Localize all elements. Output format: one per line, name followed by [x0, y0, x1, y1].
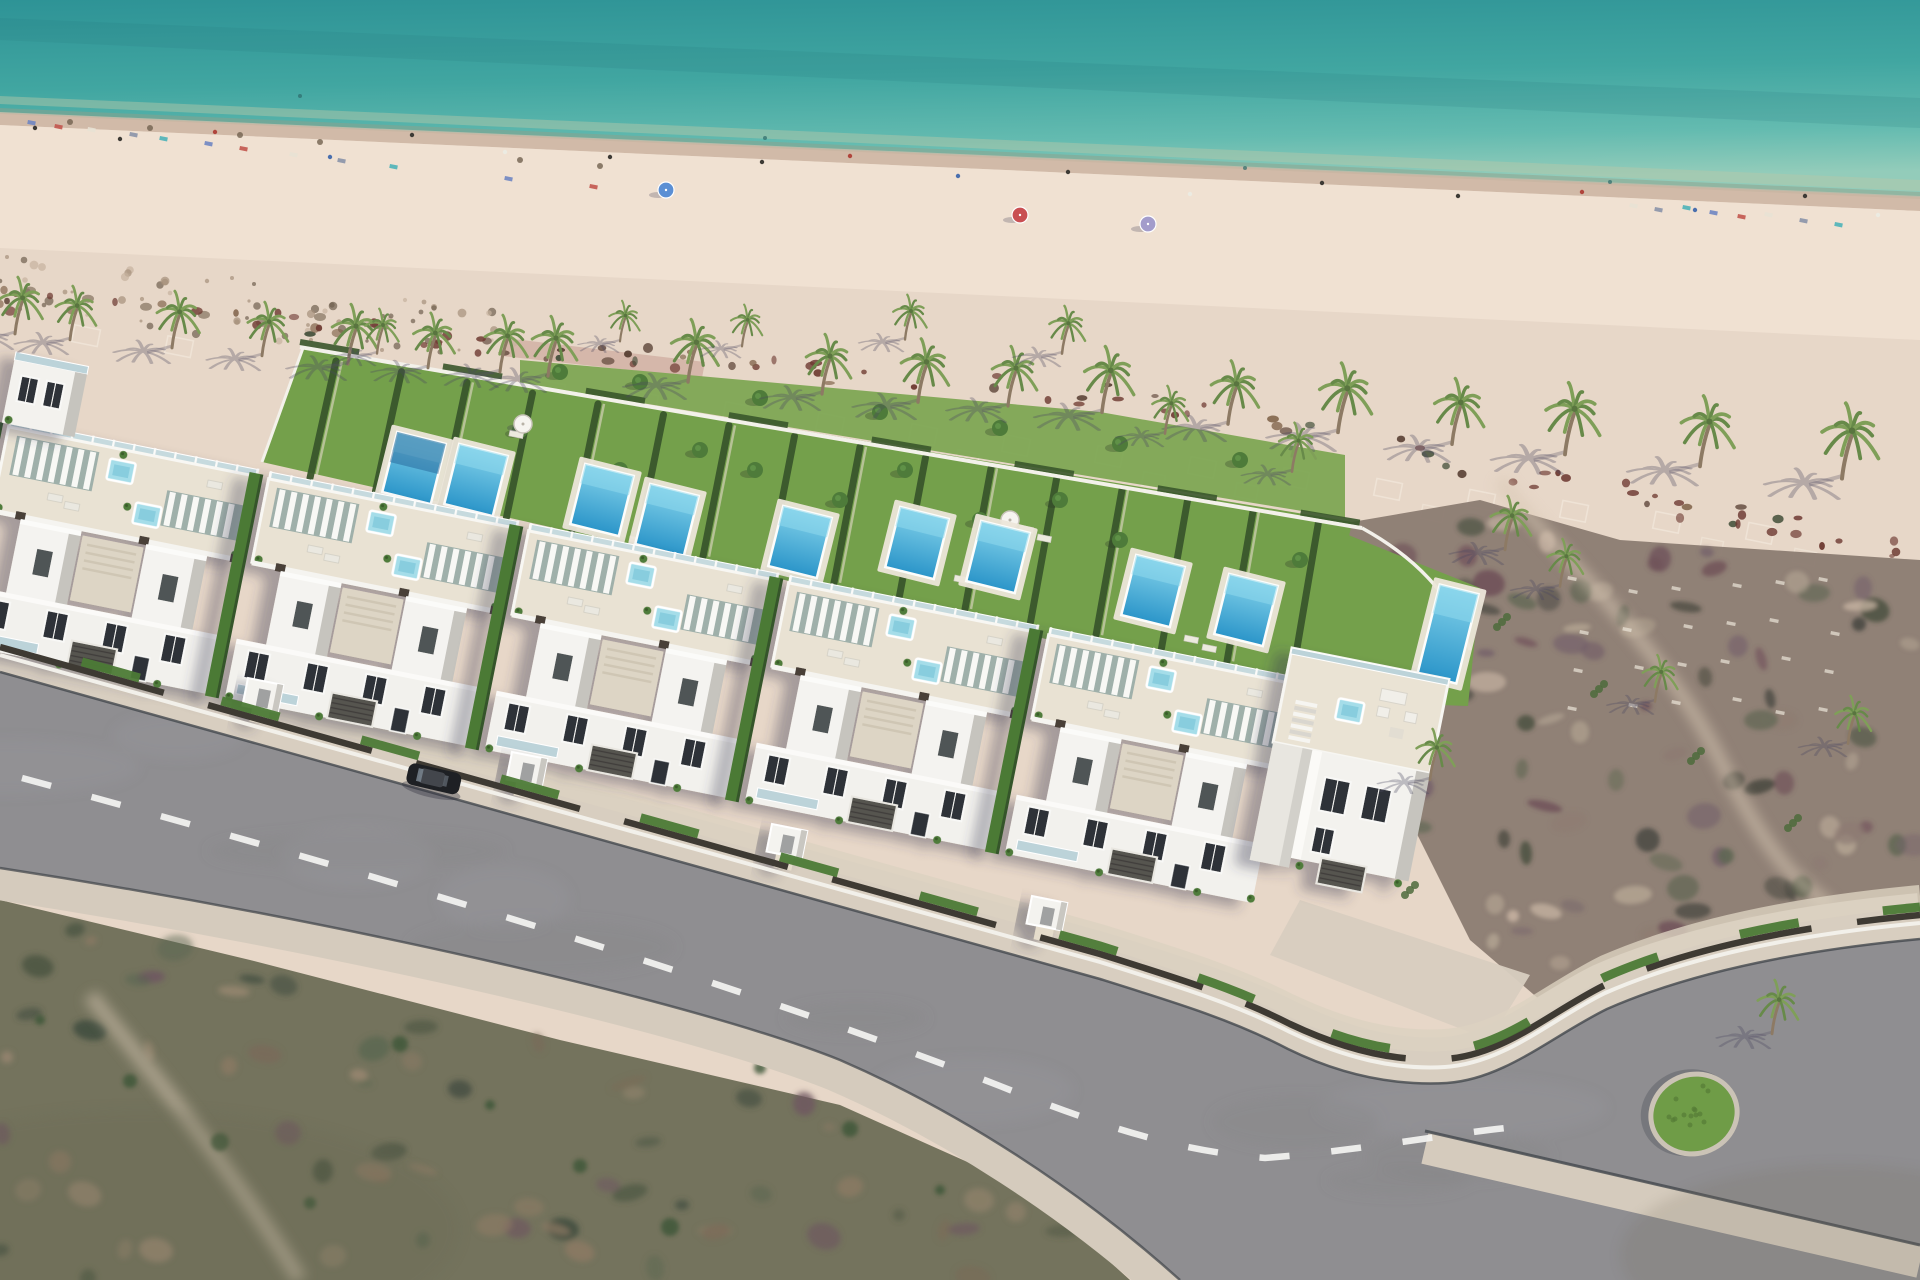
scene-canvas — [0, 0, 1920, 1280]
beachgoer — [213, 130, 217, 134]
beachgoer — [33, 126, 37, 130]
beachgoer — [1693, 208, 1697, 212]
beachgoer — [1803, 194, 1807, 198]
beachgoer — [1188, 192, 1192, 196]
beachgoer — [1876, 213, 1880, 217]
beachgoer — [1320, 181, 1324, 185]
beachgoer — [503, 150, 507, 154]
beachgoer — [760, 160, 764, 164]
beachgoer — [328, 155, 332, 159]
beachgoer — [956, 174, 960, 178]
beachgoer — [1066, 170, 1070, 174]
villa-end-block — [2, 352, 89, 437]
beachgoer — [1456, 194, 1460, 198]
beachgoer — [608, 155, 612, 159]
beachgoer — [1580, 190, 1584, 194]
beachgoer — [118, 137, 122, 141]
beachgoer — [848, 154, 852, 158]
beachgoer — [410, 133, 414, 137]
aerial-render-beachfront-development — [0, 0, 1920, 1280]
